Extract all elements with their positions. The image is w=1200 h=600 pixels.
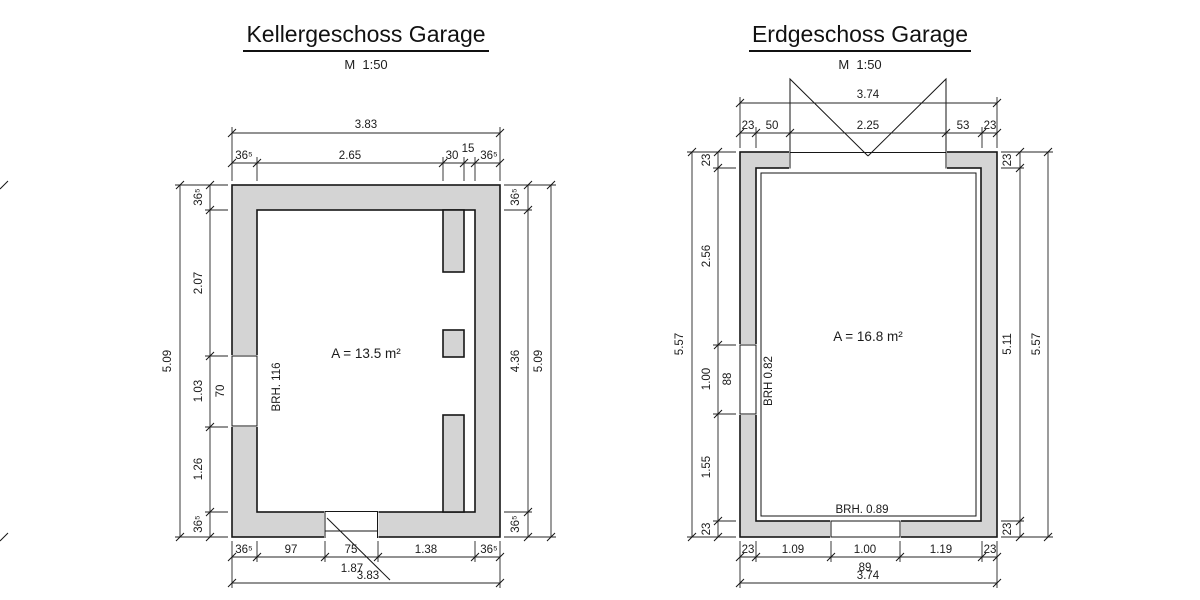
eg-dim-label: 2.25	[857, 120, 879, 132]
kg-dim-label: 36⁵	[193, 515, 205, 533]
drawing-canvas: Kellergeschoss Garage M 1:50 Erdgeschoss…	[0, 0, 1200, 600]
kg-dim-bottom-total: 3.83	[357, 570, 379, 582]
kg-dim-label: 36⁵	[480, 150, 498, 162]
eg-dim-left-total: 5.57	[674, 333, 686, 355]
kg-dim-label: 36⁵	[480, 544, 498, 556]
eg-dim-bottom-total: 3.74	[857, 570, 880, 582]
eg-garage-door-mask	[789, 151, 947, 170]
eg-dim-label: 1.09	[782, 544, 804, 556]
kg-window-brh-label: BRH. 116	[271, 362, 283, 411]
eg-dim-label: 23	[1002, 523, 1014, 536]
kg-window-width-label: 70	[215, 385, 227, 398]
eg-room	[756, 168, 981, 521]
kg-dim-label: 36⁵	[510, 515, 522, 533]
kg-dim-label: 36⁵	[235, 150, 253, 162]
eg-left-window-mask	[739, 344, 758, 415]
kg-window-opening-mask	[231, 355, 259, 427]
kg-pilaster-middle	[443, 330, 464, 357]
kg-dim-label: 36⁵	[193, 188, 205, 206]
eg-dim-label: 1.55	[701, 456, 713, 478]
eg-dim-label: 1.00	[854, 544, 876, 556]
eg-dim-right-total: 5.57	[1031, 333, 1043, 355]
kg-dim-label: 2.07	[193, 272, 205, 294]
eg-left-window-brh-label: BRH 0.82	[763, 356, 775, 406]
eg-dim-label: 23	[742, 544, 755, 556]
eg-dim-label: 23	[1002, 154, 1014, 167]
eg-area-label: A = 16.8 m²	[833, 329, 903, 344]
kg-dim-label: 1.26	[193, 458, 205, 480]
eg-dim-label: 1.00	[701, 368, 713, 390]
kg-dim-label: 4.36	[510, 350, 522, 372]
eg-dim-label: 23	[701, 523, 713, 536]
eg-dim-label: 53	[957, 120, 970, 132]
eg-dim-label: 2.56	[701, 245, 713, 267]
kg-dim-left-total: 5.09	[162, 350, 174, 372]
kg-pilaster-top	[443, 210, 464, 272]
kg-plan: 3.83 36⁵ 2.65 30 15 36⁵ 5.09 36⁵ 2.07 1.…	[0, 119, 556, 588]
kg-dim-label: 2.65	[339, 150, 361, 162]
kg-area-label: A = 13.5 m²	[331, 346, 401, 361]
eg-dim-top-total: 3.74	[857, 89, 880, 101]
eg-dim-label: 50	[766, 120, 779, 132]
kg-dim-label: 36⁵	[235, 544, 253, 556]
kg-dim-label: 36⁵	[510, 188, 522, 206]
eg-plan: 3.74 23 50 2.25 53 23 5.57 23 2.56 1.00 …	[674, 79, 1053, 588]
kg-pilaster-bottom	[443, 415, 464, 512]
kg-dim-top-total: 3.83	[355, 119, 377, 131]
kg-dim-label: 97	[285, 544, 298, 556]
eg-dim-label: 23	[984, 544, 997, 556]
kg-dim-label: 15	[462, 143, 475, 155]
eg-dim-label: 23	[984, 120, 997, 132]
eg-dim-label: 23	[701, 154, 713, 167]
eg-dim-label: 5.11	[1002, 333, 1014, 355]
kg-door-opening-mask	[324, 511, 379, 539]
kg-dim-label: 75	[345, 544, 358, 556]
eg-dim-label: 1.19	[930, 544, 952, 556]
kg-dim-label: 30	[446, 150, 459, 162]
eg-dim-label: 23	[742, 120, 755, 132]
eg-bottom-window-brh-label: BRH. 0.89	[835, 504, 888, 516]
eg-walls	[739, 79, 997, 538]
kg-dim-label: 1.03	[193, 380, 205, 402]
kg-walls	[231, 185, 500, 538]
floorplan-drawing: 3.83 36⁵ 2.65 30 15 36⁵ 5.09 36⁵ 2.07 1.…	[0, 0, 1200, 600]
kg-dim-right-total: 5.09	[533, 350, 545, 372]
kg-dim-label: 1.38	[415, 544, 437, 556]
eg-bottom-window-mask	[830, 520, 901, 538]
eg-window-width-label: 88	[722, 373, 734, 386]
